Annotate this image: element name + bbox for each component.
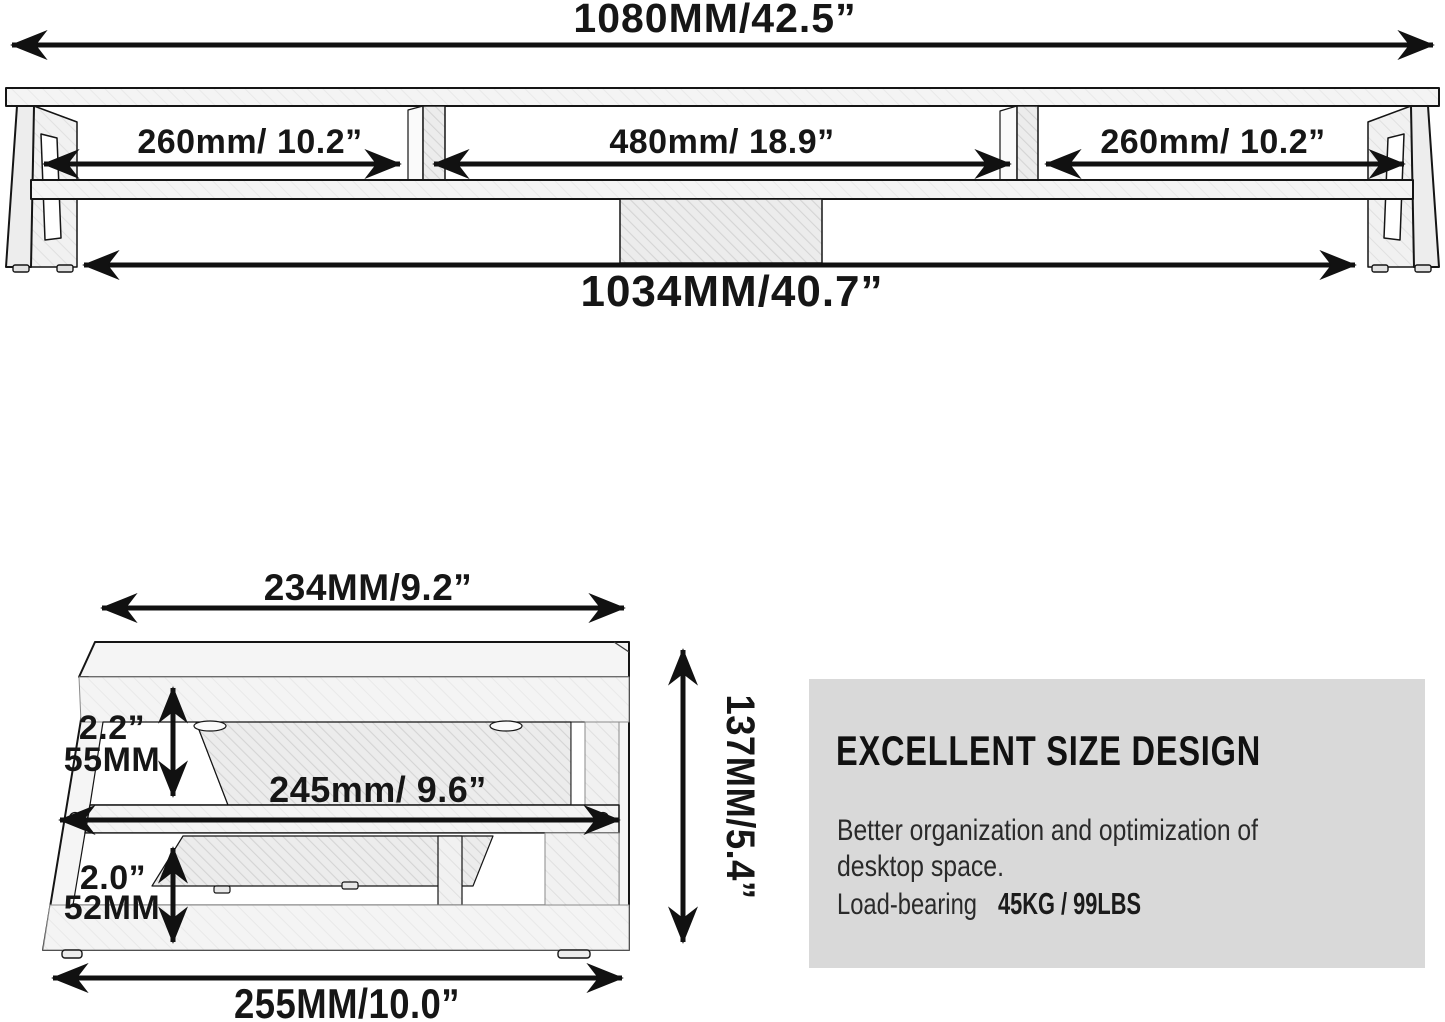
side-top-width-dimension-label: 234MM/9.2” (264, 567, 473, 608)
side-under-rail (79, 677, 629, 722)
product-dimension-sheet: 1080MM/42.5” (0, 0, 1445, 1022)
side-lower-right-panel (545, 833, 619, 905)
info-box-body-line2: desktop space. (837, 850, 1004, 883)
side-body-foot (558, 950, 590, 958)
overall-width-dimension-label: 1080MM/42.5” (573, 0, 856, 41)
right-section-dimension-label: 260mm/ 10.2” (1100, 123, 1325, 161)
center-support-block (620, 199, 822, 263)
left-divider-front-face (423, 106, 445, 181)
upper-clearance-mm-label: 55MM (64, 741, 160, 779)
right-leg-foot (1372, 265, 1388, 272)
info-box-title: EXCELLENT SIZE DESIGN (836, 727, 1261, 774)
middle-section-dimension-label: 480mm/ 18.9” (609, 123, 834, 161)
side-body-foot (62, 950, 82, 958)
side-upper-right-panel (585, 722, 619, 805)
left-leg-foot (13, 265, 29, 272)
side-upper-slot (571, 722, 585, 805)
right-leg-front-face (1411, 106, 1439, 267)
side-lower-post (438, 836, 462, 905)
top-shelf-board (6, 88, 1439, 106)
left-section-dimension-label: 260mm/ 10.2” (137, 123, 362, 161)
info-box-body-line1: Better organization and optimization of (837, 814, 1259, 847)
dimension-diagram-canvas: 1080MM/42.5” (0, 0, 1445, 1022)
middle-shelf-rail (31, 180, 1413, 199)
side-view-diagram: 234MM/9.2” 245mm/ 9.6” 2 (43, 567, 762, 1022)
brace-foot (342, 882, 358, 889)
right-divider-front-face (1017, 106, 1038, 184)
info-box: EXCELLENT SIZE DESIGN Better organizatio… (809, 679, 1425, 968)
monitor-pad-tab (194, 721, 226, 731)
monitor-pad-tab (490, 721, 522, 731)
load-bearing-label: Load-bearing (837, 888, 977, 921)
side-bottom-width-dimension-label: 255MM/10.0” (234, 980, 460, 1022)
left-leg-front-face (6, 106, 34, 267)
brace-foot (214, 886, 230, 893)
left-divider-post (408, 106, 445, 185)
right-divider-post (1000, 106, 1038, 188)
right-divider-side-face (1000, 106, 1017, 188)
front-view-diagram: 1080MM/42.5” (6, 0, 1439, 316)
side-middle-depth-dimension-label: 245mm/ 9.6” (269, 769, 487, 810)
left-leg-foot (57, 265, 73, 272)
load-bearing-value: 45KG / 99LBS (998, 886, 1141, 921)
inner-width-dimension-label: 1034MM/40.7” (580, 267, 883, 316)
lower-clearance-mm-label: 52MM (64, 889, 160, 927)
right-leg-foot (1415, 265, 1431, 272)
total-height-dimension-label: 137MM/5.4” (718, 695, 762, 900)
left-divider-side-face (408, 106, 423, 185)
